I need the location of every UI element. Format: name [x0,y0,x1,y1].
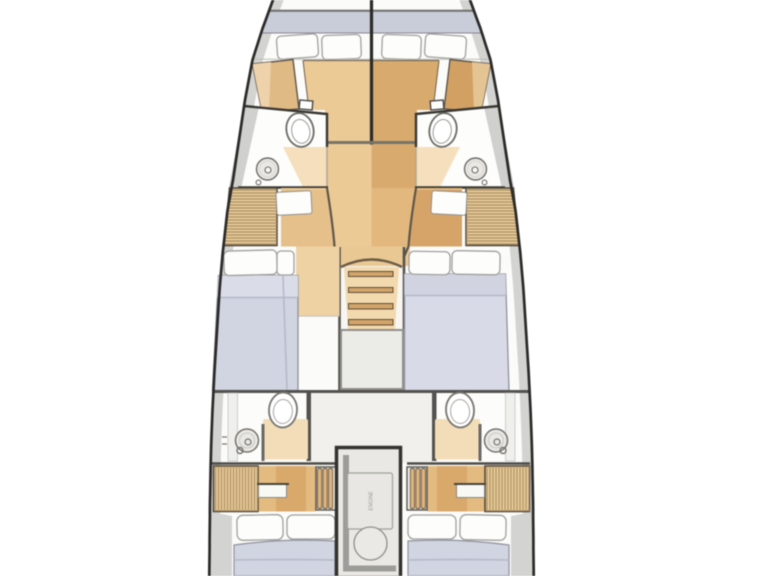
svg-text:ENGINE: ENGINE [369,491,375,511]
